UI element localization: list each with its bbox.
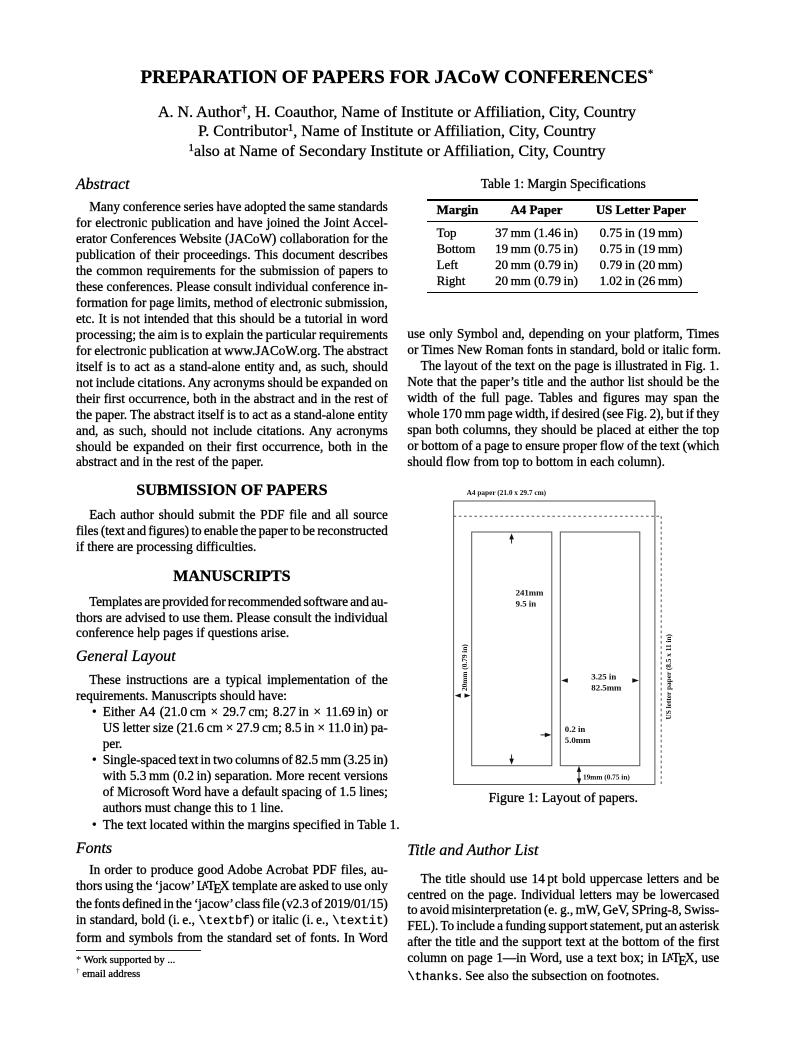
svg-text:241mm: 241mm [516, 588, 545, 598]
svg-text:0.2 in: 0.2 in [565, 724, 586, 734]
svg-text:19mm (0.75 in): 19mm (0.75 in) [583, 773, 630, 782]
svg-text:20mm (0.79 in): 20mm (0.79 in) [460, 644, 469, 691]
svg-text:US letter paper (8.5 x 11 in): US letter paper (8.5 x 11 in) [664, 633, 673, 719]
svg-text:5.0mm: 5.0mm [565, 735, 591, 745]
svg-text:3.25 in: 3.25 in [591, 672, 616, 682]
svg-text:82.5mm: 82.5mm [591, 683, 622, 693]
svg-text:9.5 in: 9.5 in [516, 599, 537, 609]
svg-text:A4 paper (21.0 x 29.7 cm): A4 paper (21.0 x 29.7 cm) [467, 488, 547, 497]
